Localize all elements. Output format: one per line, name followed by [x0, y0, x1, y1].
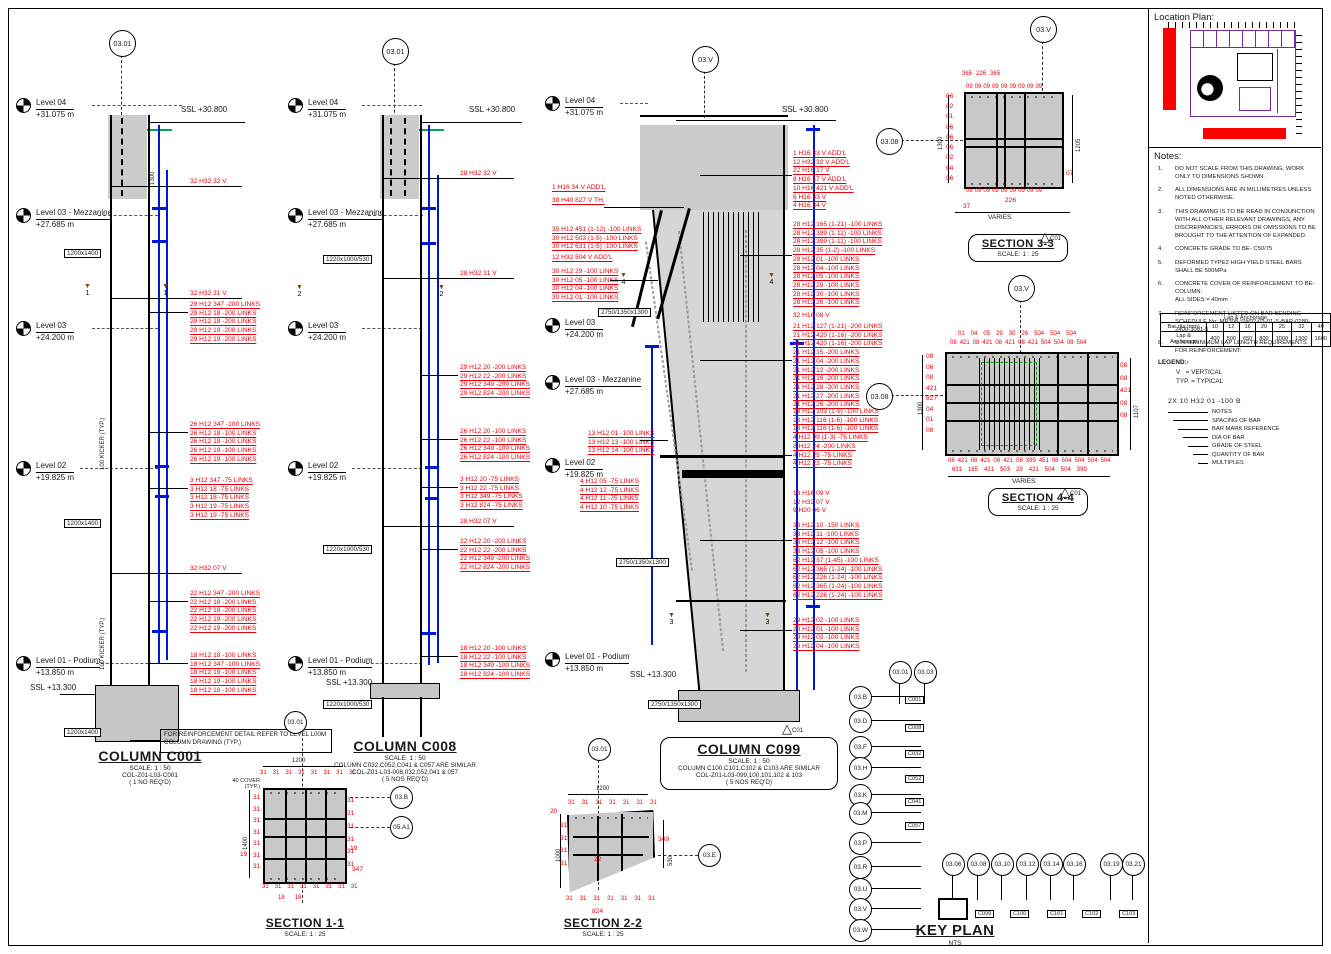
callout-label-row: NOTES	[1168, 409, 1318, 415]
note-no: 3.	[1158, 209, 1168, 241]
ssl-top-label: SSL +30.800	[181, 105, 227, 114]
plan-core	[1197, 75, 1223, 101]
bar-mark: 421	[982, 340, 992, 346]
leader	[1193, 454, 1208, 455]
bar-mark: 05	[983, 331, 990, 337]
ssl-bottom-label: SSL +13.300	[30, 683, 76, 692]
level-name: Level 03 - Mezzanine	[565, 375, 641, 387]
lap-tick	[152, 240, 166, 243]
rebar-stack-left: 13 H12 01 -100 LINKS13 H12 13 -100 LINKS…	[588, 430, 654, 456]
dim-line	[568, 794, 648, 795]
bar-mark: 04	[971, 331, 978, 337]
rebar-label: 28 H12 29 -100 LINKS	[793, 282, 882, 291]
leader	[150, 601, 188, 602]
keyplan-column-tag: C001	[905, 696, 924, 704]
key-plan-title: KEY PLAN NTS	[900, 922, 1010, 947]
rebar-label: 30 H12 01 -100 LINKS	[552, 294, 618, 303]
rebar-label: 28 H12 399 (1-11) -100 LINKS	[793, 230, 882, 239]
callout-labels: NOTESSPACING OF BARBAR MARK REFERENCEDIA…	[1168, 409, 1318, 466]
leader	[150, 663, 188, 664]
rebar-label: 33 H12 11 -100 LINKS	[793, 531, 859, 540]
leader	[420, 656, 458, 657]
level-line	[620, 103, 648, 104]
bar-mark: 09	[1036, 84, 1043, 90]
callout-label: MULTIPLES	[1212, 460, 1244, 466]
keyplan-grid-bubble: 03.12	[1016, 853, 1039, 876]
note-text: DO NOT SCALE FROM THIS DRAWING, WORK ONL…	[1175, 166, 1318, 182]
rebar-label: 29 H12 22 -200 LINKS	[460, 373, 530, 382]
rebar-label: 18 H12 349 -100 LINKS	[460, 662, 530, 671]
level-marker: Level 02+19.825 m	[16, 461, 74, 483]
dim-line	[1072, 95, 1073, 183]
link-bar	[573, 836, 649, 838]
ssl-leader	[422, 122, 522, 123]
bar-mark: 09	[1036, 188, 1043, 194]
level-elev: +19.825 m	[36, 473, 74, 483]
rebar-label: 9 H20 06 V	[793, 507, 830, 516]
rebar-label: 22 H12 18 -200 LINKS	[190, 607, 260, 616]
rebar-label: 26 H12 347 -100 LINKS	[190, 421, 260, 430]
size-label: 1200x1400	[64, 249, 101, 258]
rebar-dots	[968, 182, 1058, 186]
note-no: 1.	[1158, 166, 1168, 182]
bar-dashed	[404, 118, 406, 196]
level-marker: Level 01 - Podium+13.850 m	[545, 652, 629, 674]
level-elev: +27.685 m	[308, 220, 384, 230]
bar-mark: 08	[993, 458, 1000, 464]
bar-dashed	[121, 118, 123, 196]
leader	[384, 526, 514, 527]
keyplan-column-tag: C100	[1010, 910, 1029, 918]
rebar-label: 3 H12 20 -75 LINKS	[460, 476, 523, 485]
bar-mark: 09	[1027, 188, 1034, 194]
lap-row-label: Bar dia (mm)	[1161, 323, 1207, 332]
keyplan-gridline	[977, 874, 978, 900]
keyplan-gridline	[871, 794, 921, 795]
bar-mark: 451	[1039, 458, 1049, 464]
bar-mark: 31	[650, 800, 657, 806]
leader	[130, 740, 160, 741]
keyplan-column-tag: C057	[905, 822, 924, 830]
bar-mark: 504	[1077, 340, 1087, 346]
bar-mark: 09	[983, 188, 990, 194]
ssl-bottom-label: SSL +13.300	[630, 670, 676, 679]
rebar-label: 21 H12 127 (1-21) -200 LINKS	[793, 323, 882, 332]
level-elev: +13.850 m	[565, 664, 629, 674]
leader	[112, 298, 242, 299]
bar-mark: 31	[253, 861, 260, 873]
bar-mark: 421	[1028, 340, 1038, 346]
centerline	[1020, 300, 1021, 358]
rebar-dots	[572, 816, 648, 820]
rebar-label: 28 H12 01 -100 LINKS	[793, 256, 882, 265]
lap-value: 32	[1292, 323, 1311, 332]
keyplan-grid-bubble: 03.M	[849, 802, 872, 825]
bar-marks-18: 1818	[278, 895, 301, 901]
section-cut-4: ▼4	[768, 272, 775, 286]
bar-mark: 18	[278, 895, 285, 901]
rebar-label: 18 H12 20 -100 LINKS	[460, 645, 530, 654]
rebar-label: 3 H12 349 -75 LINKS	[460, 493, 523, 502]
column-shaft	[110, 115, 150, 685]
notes-title: Notes:	[1154, 151, 1181, 162]
dim-line	[948, 476, 1110, 477]
lap-value: 12	[1223, 323, 1239, 332]
level-name: Level 01 - Podium	[308, 656, 372, 668]
link-bar	[1057, 354, 1059, 454]
bar-mark: 421	[980, 458, 990, 464]
bar-mark-19: 19	[350, 845, 357, 854]
keyplan-grid-bubble: 03.01	[889, 661, 912, 684]
note-item: 3.THIS DRAWING IS TO BE READ IN CONJUNCT…	[1158, 209, 1318, 241]
grid-bubble: 05.A1	[390, 816, 413, 839]
level-marker: Level 02+19.825 m	[545, 458, 603, 480]
bar-mark: 31	[568, 800, 575, 806]
rebar-label: 26 H12 349 -100 LINKS	[460, 445, 530, 454]
rebar-label: 30 H12 503 (1-5) -100 LINKS	[552, 235, 641, 244]
rebar-label: 6 H16 33 V	[793, 194, 854, 203]
rebar-label: 18 H16 09 V	[793, 490, 830, 499]
level-marker: Level 03+24.200 m	[545, 318, 603, 340]
rebar-label: 29 H12 18 -200 LINKS	[190, 318, 260, 327]
datum-icon	[288, 98, 303, 113]
lap-value: 1300	[1292, 332, 1311, 347]
bar-mark: 31	[580, 896, 587, 902]
keyplan-grid-bubble: 03.B	[849, 686, 872, 709]
leader	[744, 455, 792, 456]
rebar-label: 26 H12 19 -100 LINKS	[190, 456, 260, 465]
keyplan-grid-bubble: 03.W	[849, 919, 872, 942]
highlight-bar-horizontal	[1203, 128, 1286, 139]
datum-icon	[16, 208, 31, 223]
rebar-label: 29 H12 347 -200 LINKS	[190, 301, 260, 310]
rebar-label: 22 H12 19 -200 LINKS	[190, 616, 260, 625]
kicker-label: 100 KICKER (TYP.)	[100, 618, 106, 670]
note-item: 1.DO NOT SCALE FROM THIS DRAWING, WORK O…	[1158, 166, 1318, 182]
beam-line	[682, 470, 785, 478]
rebar-label: 18 H12 824 -100 LINKS	[460, 671, 530, 680]
bar-mark: 504	[1041, 340, 1051, 346]
level-marker: Level 04+31.075 m	[288, 98, 346, 120]
rebar-label: 18 H12 19 -100 LINKS	[190, 669, 260, 678]
callout-label: NOTES	[1212, 409, 1232, 415]
bar-mark: 09	[983, 84, 990, 90]
level-marker: Level 03 - Mezzanine+27.685 m	[545, 375, 641, 397]
bar-mark: 504	[1034, 331, 1044, 337]
bar-mark: 31	[262, 884, 269, 890]
bar-mark: 31	[253, 815, 260, 827]
callout-example: 2X 10 H32 01 -100 B	[1168, 398, 1318, 405]
bar-mark: 09	[966, 84, 973, 90]
lap-tick	[152, 207, 166, 210]
bar-mark: 31	[560, 820, 567, 833]
leader	[420, 375, 458, 376]
bar-mark: 31	[253, 850, 260, 862]
datum-icon	[545, 318, 560, 333]
lap-bar-line	[651, 345, 653, 645]
rebar-label: 62 H12 37 (1-45) -100 LINKS	[793, 557, 882, 566]
rebar-label: 26 H12 18 -100 LINKS	[190, 430, 260, 439]
keyplan-grid-bubble: 03.10	[991, 853, 1014, 876]
bar-mark: 31	[300, 884, 307, 890]
revision-triangle: △C01	[1060, 485, 1070, 498]
size-label: 2750/1350x1300	[648, 700, 701, 709]
lap-tick	[645, 345, 659, 348]
centerline	[394, 63, 395, 118]
rebar-label: 18 H12 18 -100 LINKS	[190, 687, 260, 696]
rebar-label: 33 H12 10 -150 LINKS	[793, 522, 859, 531]
rebar-label: 3 H12 18 -75 LINKS	[190, 494, 253, 503]
note-no: 6.	[1158, 281, 1168, 305]
level-elev: +31.075 m	[36, 110, 74, 120]
bar-marks-row: 0842108421084210842150450408504	[950, 340, 1087, 346]
datum-icon	[16, 656, 31, 671]
bar-mark: 827	[926, 394, 937, 405]
bar-mark: 504	[1045, 467, 1055, 473]
keyplan-grid-bubble: 03.03	[914, 661, 937, 684]
level-marker: Level 03 - Mezzanine+27.685 m	[288, 208, 384, 230]
rebar-stack-right: 8 H12 24 -200 LINKS4 H12 25 -75 LINKS4 H…	[793, 443, 856, 469]
bar-mark: 09	[966, 188, 973, 194]
level-name: Level 04	[308, 98, 346, 110]
bar-mark: 31	[253, 827, 260, 839]
bar-mark: 31	[566, 896, 573, 902]
bar-mark: 09	[992, 84, 999, 90]
keyplan-gridline	[871, 812, 921, 813]
leader	[740, 255, 792, 256]
bar-mark: 01	[926, 415, 937, 426]
rebar-label: 33 H12 05 -100 LINKS	[793, 548, 859, 557]
rebar-label: 13 H12 116 (1-6) -100 LINKS	[793, 417, 879, 426]
bar-mark: 08	[1018, 340, 1025, 346]
keyplan-grid-bubble: 03.D	[849, 710, 872, 733]
dim-right: 1205	[1076, 139, 1082, 152]
rebar-label: 29 H12 03 -100 LINKS	[793, 634, 859, 643]
keyplan-grid-bubble: 03.P	[849, 832, 872, 855]
rebar-label: 29 H12 02 -100 LINKS	[793, 617, 859, 626]
rebar-label: 62 H12 226 (1-24) -100 LINKS	[793, 592, 882, 601]
callout-label: GRADE OF STEEL	[1212, 443, 1262, 449]
green-zone	[981, 362, 1037, 446]
bar-mark: 503	[1000, 467, 1010, 473]
bar-mark: 504	[1075, 458, 1085, 464]
bar-mark: 421	[960, 340, 970, 346]
rebar-stack-right: 62 H12 37 (1-45) -100 LINKS62 H12 365 (1…	[793, 557, 882, 601]
beam-line	[676, 600, 786, 602]
rebar-label: 22 H12 18 -200 LINKS	[190, 599, 260, 608]
rebar-stack-left: 1 H16 34 V ADD'L	[552, 184, 605, 193]
bar-mark: 09	[1001, 188, 1008, 194]
leader	[112, 186, 242, 187]
section-cut-1: ▼1	[84, 283, 91, 297]
dim-line	[948, 95, 949, 183]
bar-mark: 31	[351, 884, 358, 890]
level-elev: +31.075 m	[308, 110, 346, 120]
rebar-label: 4 H12 99 (1-3) -75 LINKS	[793, 434, 879, 443]
dim-top: 1200	[596, 786, 609, 792]
bar-mark: 31	[607, 896, 614, 902]
kicker-label: 100 KICKER (TYP.)	[100, 418, 106, 470]
rebar-label: 4 H12 12 -75 LINKS	[580, 487, 639, 496]
section-1-1-title: SECTION 1-1 SCALE: 1 : 25	[250, 916, 360, 938]
shaft-below-pad	[382, 697, 422, 737]
keyplan-gridline	[952, 874, 953, 900]
plan-outline	[1190, 30, 1296, 117]
keyplan-grid-bubble: 03.H	[849, 757, 872, 780]
rebar-label: 26 H12 19 -100 LINKS	[190, 447, 260, 456]
level-name: Level 03	[308, 321, 346, 333]
rebar-label: 3 H12 19 -75 LINKS	[190, 503, 253, 512]
bar-marks-row: 3131313131313131	[262, 884, 358, 890]
callout-label: DIA OF BAR	[1212, 435, 1245, 441]
lap-value: 1600	[1311, 332, 1330, 347]
grid-bubble: 03.01	[382, 38, 409, 65]
lap-bar-line	[158, 125, 160, 663]
rebar-label: 18 H12 22 -100 LINKS	[460, 654, 530, 663]
rebar-label: 29 H12 04 -100 LINKS	[793, 643, 859, 652]
level-marker: Level 01 - Podium+13.850 m	[288, 656, 372, 678]
level-name: Level 01 - Podium	[565, 652, 629, 664]
bar-mark: 08	[926, 373, 937, 384]
tick-row: 090909090909090909	[966, 188, 1042, 194]
lap-value: 40	[1311, 323, 1330, 332]
rebar-label: 28 H12 35 (1-2) -100 LINKS	[793, 247, 882, 256]
rebar-stack-right: 1 H16 33 V ADD'L12 H32 32 V ADD'L22 H16 …	[793, 150, 854, 211]
rebar-label: 28 H12 05 -100 LINKS	[793, 273, 882, 282]
bar-mark: 08	[1052, 458, 1059, 464]
bar-mark: 31	[325, 884, 332, 890]
gridline	[350, 797, 390, 798]
level-elev: +24.200 m	[308, 333, 346, 343]
bar-mark: 504	[1066, 331, 1076, 337]
grid-bubble: 03.B	[390, 786, 413, 809]
bar-marks-row: 31313131313131	[568, 800, 657, 806]
keyplan-gridline	[1110, 874, 1111, 900]
legend: LEGEND:- V = VERTICAL TYP. = TYPICAL	[1158, 358, 1318, 387]
rebar-label: 18 H12 19 -100 LINKS	[190, 678, 260, 687]
panel-divider	[1148, 9, 1149, 943]
section-2-2-title: SECTION 2-2 SCALE: 1 : 25	[548, 916, 658, 938]
bar-mark: 31	[253, 792, 260, 804]
leader	[384, 278, 514, 279]
lap-value: 500	[1223, 332, 1239, 347]
bar-mark: 09	[1018, 84, 1025, 90]
bar-mark: 165	[968, 467, 978, 473]
leader	[700, 175, 792, 176]
section-body	[964, 92, 1064, 189]
level-elev: +19.825 m	[308, 473, 346, 483]
link-bar	[1087, 354, 1089, 454]
leader	[1173, 420, 1208, 421]
bar-mark: 365	[962, 71, 972, 77]
keyplan-column-tag: C008	[905, 724, 924, 732]
rebar-stack-right: 13 H12 103 (1-9) -100 LINKS13 H12 116 (1…	[793, 408, 879, 443]
rebar-label: 21 H12 04 -200 LINKS	[793, 358, 882, 367]
ssl-bottom-label: SSL +13.300	[326, 678, 372, 687]
bar-mark: 26	[1021, 331, 1028, 337]
size-label: 2750/1350x1300	[598, 308, 651, 317]
level-name: Level 04	[36, 98, 74, 110]
grid-bubble: 03.V	[1008, 275, 1035, 302]
bar-marks-left: 080608421827040108	[926, 352, 937, 436]
datum-icon	[288, 461, 303, 476]
bar-mark: 09	[1001, 84, 1008, 90]
bar-mark: 31	[560, 845, 567, 858]
bar-mark: 504	[1101, 458, 1111, 464]
body-edge-right	[783, 125, 785, 691]
keyplan-square	[938, 898, 968, 920]
rebar-label: 62 H12 226 (1-24) -100 LINKS	[793, 574, 882, 583]
leader	[640, 440, 668, 441]
bar-mark: 08	[1067, 340, 1074, 346]
gridline	[350, 827, 390, 828]
datum-icon	[288, 208, 303, 223]
rebar-label: 21 H12 420 (1-16) -200 LINKS	[793, 340, 882, 349]
bar-mark: 31	[609, 800, 616, 806]
link-bar	[265, 836, 345, 838]
rebar-label: 4 H16 34 V	[793, 202, 854, 211]
link-bar	[996, 94, 998, 187]
note-no: 5.	[1158, 260, 1168, 276]
keyplan-gridline	[1026, 874, 1027, 900]
section-body	[945, 352, 1119, 456]
rebar-label: 26 H12 18 -100 LINKS	[190, 438, 260, 447]
rebar-label: 26 H12 824 -100 LINKS	[460, 454, 530, 463]
bar-mark: 421	[958, 458, 968, 464]
plan-room	[1237, 53, 1273, 81]
lap-tick	[155, 465, 169, 468]
datum-icon	[545, 96, 560, 111]
links-label-stack: 3 H12 20 -75 LINKS3 H12 22 -75 LINKS3 H1…	[460, 476, 523, 511]
bar-mark: 399	[1026, 458, 1036, 464]
rebar-label: 1 H16 34 V ADD'L	[552, 184, 605, 193]
rebar-label: 3 H12 824 -75 LINKS	[460, 502, 523, 511]
bar-mark: 31	[313, 884, 320, 890]
leader	[150, 312, 188, 313]
link-bar	[265, 818, 345, 820]
bar-mark-19: 19	[240, 851, 247, 860]
dim-top: 1200	[292, 758, 305, 764]
level-name: Level 02	[565, 458, 603, 470]
grid-bubble: 03.08	[876, 128, 903, 155]
grid-bubble: 03.V	[692, 46, 719, 73]
dim-line	[922, 355, 923, 450]
keyplan-grid-bubble: 03.19	[1100, 853, 1123, 876]
gridline	[658, 855, 698, 856]
level-marker: Level 04+31.075 m	[16, 98, 74, 120]
section-body	[263, 788, 347, 884]
keyplan-gridline	[1132, 874, 1133, 900]
leader	[1168, 412, 1208, 413]
level-elev: +27.685 m	[565, 387, 641, 397]
level-marker: Level 01 - Podium+13.850 m	[16, 656, 100, 678]
keyplan-grid-bubble: 03.F	[849, 736, 872, 759]
leader	[420, 487, 458, 488]
keyplan-column-tag: C032	[905, 750, 924, 758]
bar-mark: 365	[990, 71, 1000, 77]
links-label-stack: 18 H12 18 -100 LINKS18 H12 347 -100 LINK…	[190, 652, 260, 696]
plan-wall	[1277, 49, 1278, 113]
rebar-label: 21 H12 15 -200 LINKS	[793, 349, 882, 358]
bar-mark: 31	[621, 896, 628, 902]
plan-ticks-right	[1296, 30, 1302, 134]
level-elev: +27.685 m	[36, 220, 112, 230]
keyplan-grid-bubble: 03.R	[849, 856, 872, 879]
dim-1300: 1300	[150, 172, 156, 185]
bar-mark: 29	[1016, 467, 1023, 473]
bar-marks-row: 010405293026504504504	[958, 331, 1076, 337]
dim-bottom: VARIES	[988, 214, 1011, 221]
